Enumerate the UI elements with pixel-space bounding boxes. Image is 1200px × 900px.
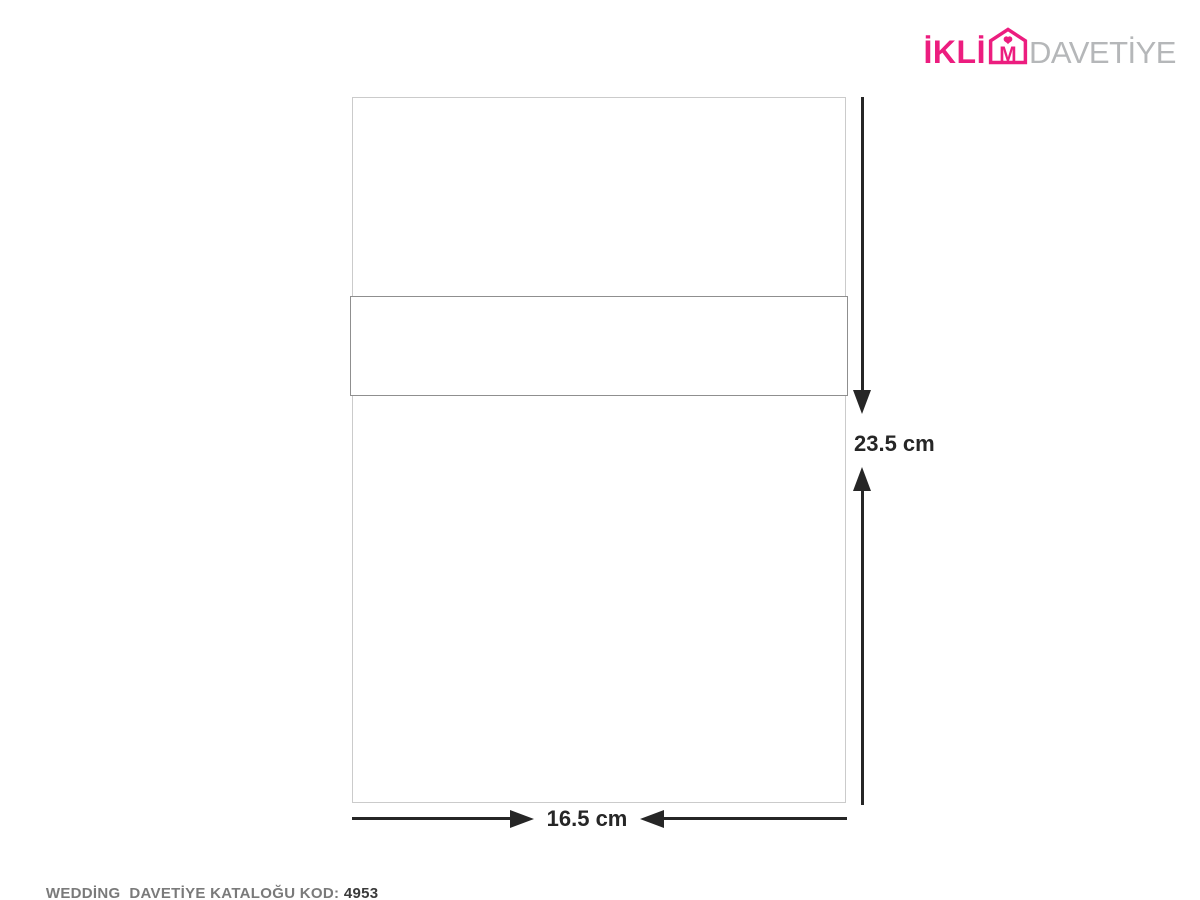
width-dimension-line-right bbox=[662, 817, 847, 820]
brand-name-primary: İKLİ bbox=[924, 38, 986, 66]
catalog-caption: WEDDİNG DAVETİYE KATALOĞU KOD: 4953 bbox=[28, 868, 378, 900]
arrowhead-up-icon bbox=[853, 467, 871, 491]
height-dimension-label: 23.5 cm bbox=[854, 431, 935, 457]
envelope-band bbox=[350, 296, 848, 396]
height-dimension-line-top bbox=[861, 97, 864, 392]
brand-name-secondary: DAVETİYE bbox=[1029, 39, 1176, 66]
width-dimension-label: 16.5 cm bbox=[547, 806, 628, 832]
envelope-letter-m: M bbox=[999, 43, 1016, 66]
catalog-code: 4953 bbox=[344, 885, 379, 900]
envelope-outline bbox=[352, 97, 846, 803]
arrowhead-left-icon bbox=[640, 810, 664, 828]
brand-logo: İKLİ M DAVETİYE bbox=[924, 24, 1176, 66]
catalog-label: WEDDİNG DAVETİYE KATALOĞU KOD: bbox=[46, 885, 344, 900]
height-dimension-line-bottom bbox=[861, 489, 864, 805]
envelope-heart-icon: M bbox=[988, 26, 1028, 66]
product-diagram-canvas: İKLİ M DAVETİYE 23.5 cm 16.5 cm WEDDİNG … bbox=[0, 0, 1200, 900]
arrowhead-right-icon bbox=[510, 810, 534, 828]
arrowhead-down-icon bbox=[853, 390, 871, 414]
width-dimension-line-left bbox=[352, 817, 512, 820]
